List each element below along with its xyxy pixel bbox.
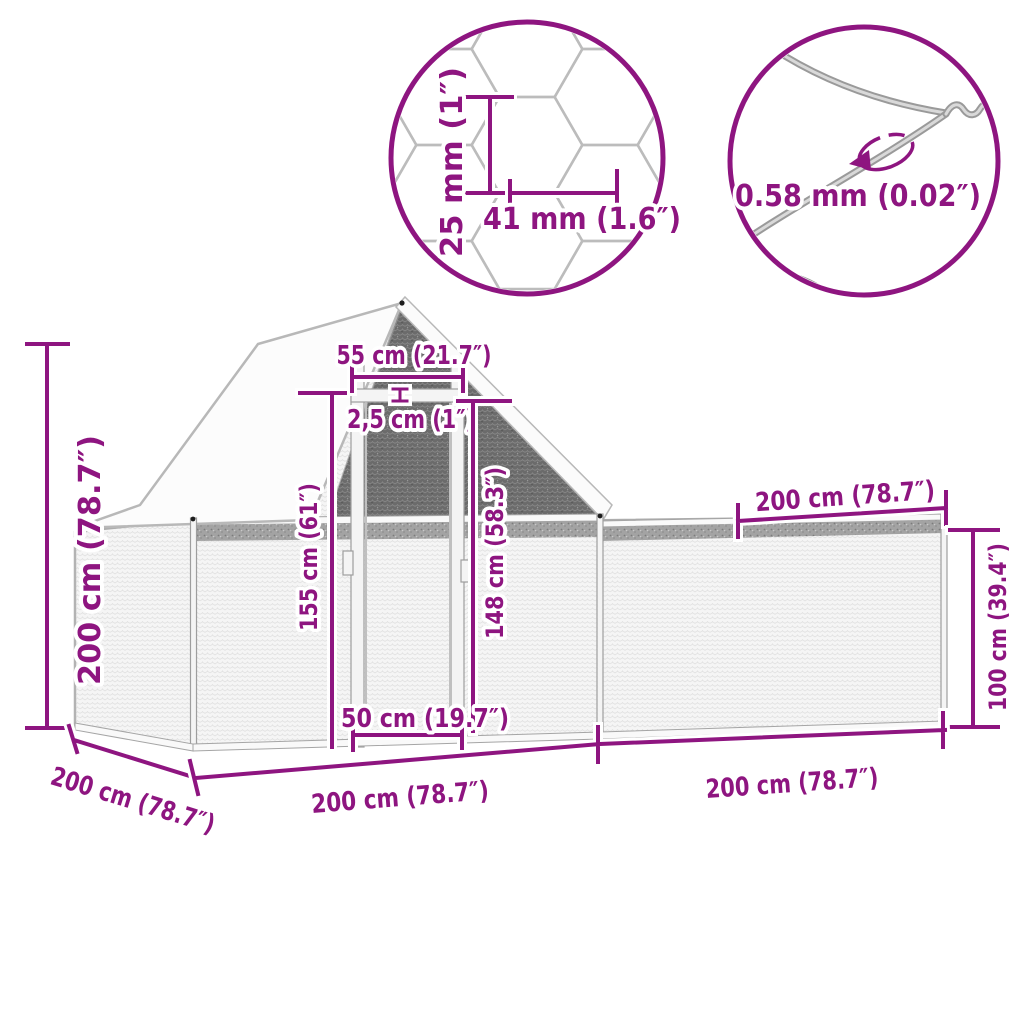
mesh-detail-circle: 25 mm (1″) 41 mm (1.6″) xyxy=(306,0,749,337)
dim-total-height: 200 cm (78.7″) xyxy=(27,344,108,728)
dim-base-length-right-label: 200 cm (78.7″) xyxy=(705,763,880,805)
wire-detail-circle: 0.58 mm (0.02″) xyxy=(730,27,1009,302)
dim-frame-tube-label: 2,5 cm (1″) xyxy=(347,405,475,435)
front-left-post xyxy=(191,518,197,750)
left-joint-dot xyxy=(191,517,196,522)
diagram-canvas: 200 cm (78.7″) 55 cm (21.7″) 2,5 cm (1″)… xyxy=(0,0,1024,1024)
mesh-cell-width-label: 41 mm (1.6″) xyxy=(483,202,681,237)
coop-dimension-diagram: 200 cm (78.7″) 55 cm (21.7″) 2,5 cm (1″)… xyxy=(0,0,1024,1024)
dim-total-height-label: 200 cm (78.7″) xyxy=(73,435,108,685)
wire-thickness-label: 0.58 mm (0.02″) xyxy=(735,179,981,214)
dim-inner-height-label: 148 cm (58.3″) xyxy=(481,467,509,639)
dim-base-length-left-label: 200 cm (78.7″) xyxy=(310,776,490,820)
divider-joint-dot xyxy=(598,514,603,519)
dim-top-panel-label: 55 cm (21.7″) xyxy=(337,341,492,371)
dim-run-height-label: 100 cm (39.4″) xyxy=(984,543,1012,711)
divider-post xyxy=(597,514,603,740)
run-right-post xyxy=(941,515,947,727)
dim-door-height-label: 155 cm (61″) xyxy=(295,483,323,631)
dim-door-width-label: 50 cm (19.7″) xyxy=(341,704,509,734)
door-latch xyxy=(343,551,353,575)
peak-joint-dot xyxy=(399,300,404,305)
mesh-cell-height-label: 25 mm (1″) xyxy=(435,67,470,257)
coop-structure xyxy=(75,297,947,751)
run-front-mesh xyxy=(601,516,944,738)
dim-run-height: 100 cm (39.4″) xyxy=(950,530,1012,727)
mesh-circle-ring xyxy=(391,22,663,294)
